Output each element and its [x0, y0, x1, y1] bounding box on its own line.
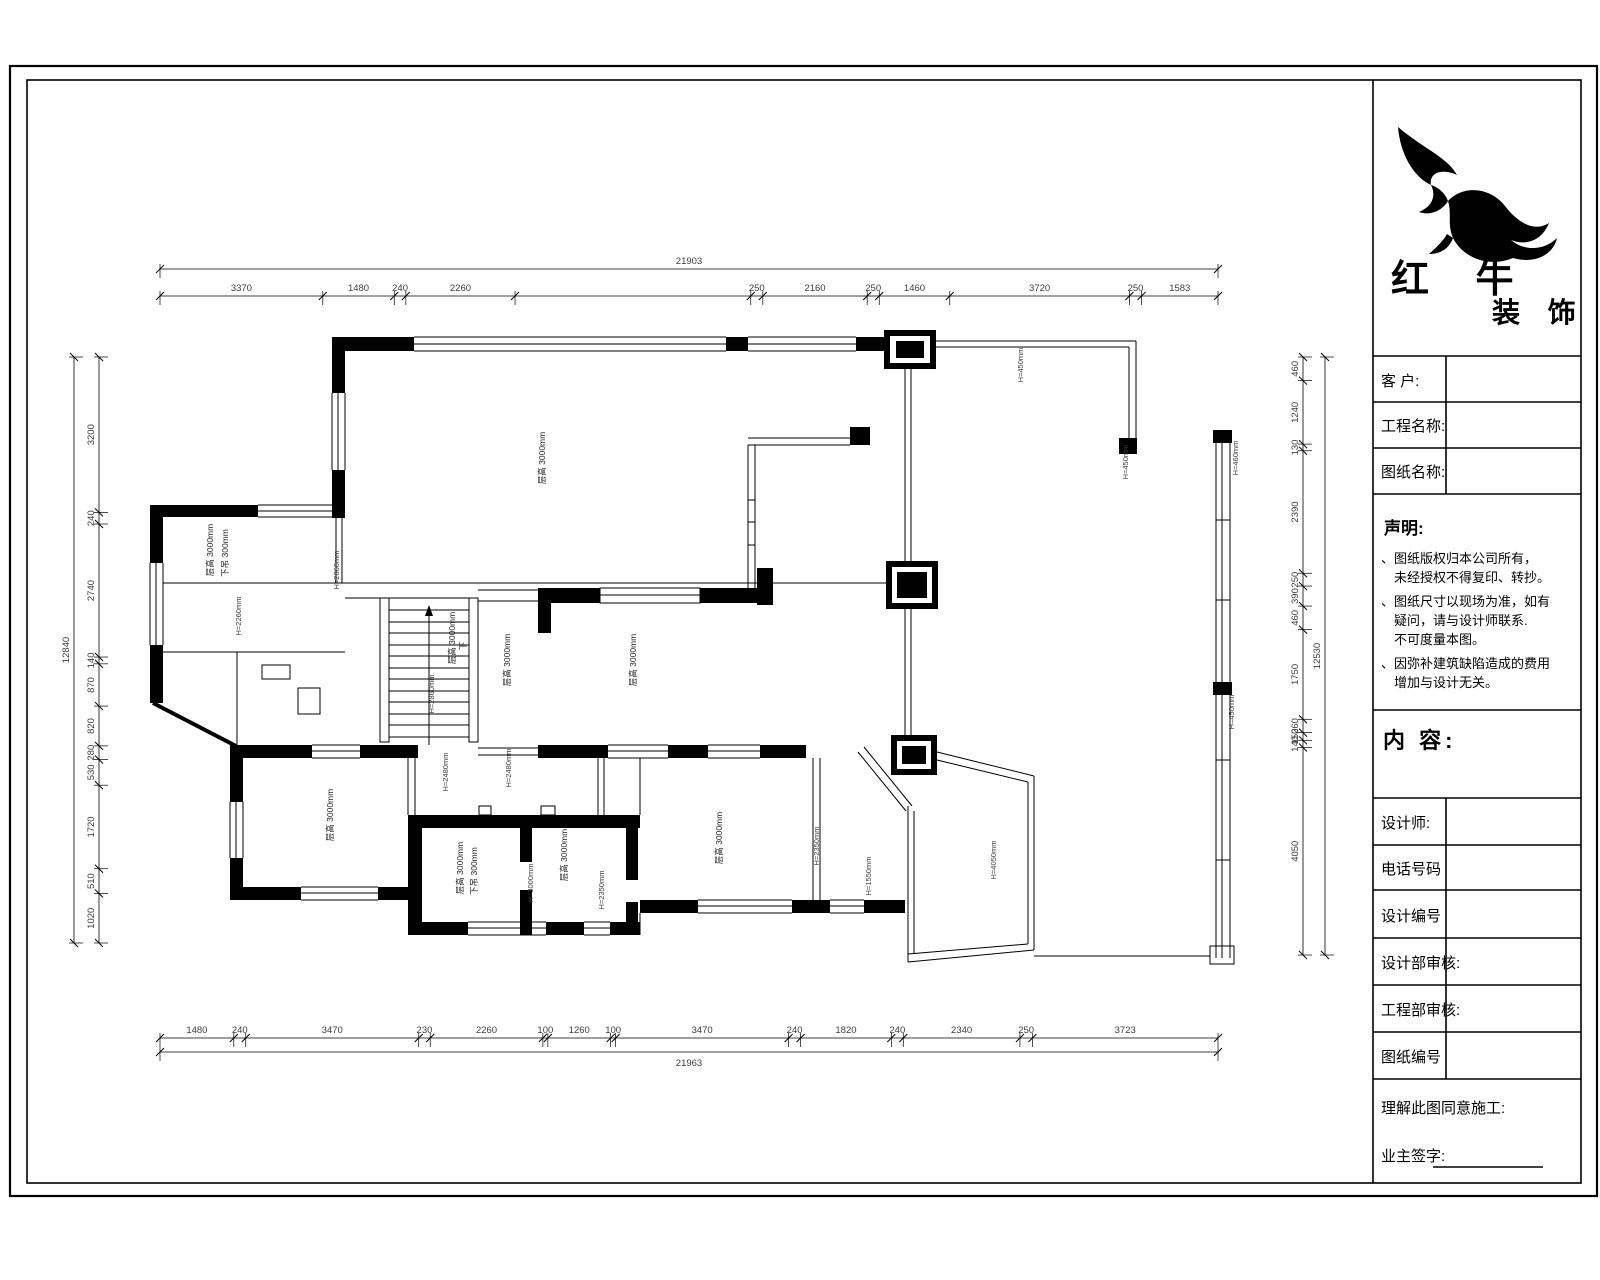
- dimension-label: 1240: [1290, 402, 1301, 423]
- dimension-label: 3470: [692, 1025, 713, 1036]
- height-annotation: H=1550mm: [864, 857, 873, 896]
- stair-down-label: 下: [458, 641, 468, 650]
- dimension-label: 240: [392, 283, 408, 294]
- room-label: 层高 3000mm: [205, 524, 215, 576]
- agree-label: 理解此图同意施工:: [1381, 1099, 1505, 1117]
- height-annotation: H=3000mm: [526, 864, 535, 903]
- height-annotation: H=460mm: [1231, 441, 1240, 476]
- dimension-label: 820: [86, 718, 97, 734]
- dim-right-segments: 4601240130239025039046017502601501404050: [1290, 353, 1312, 959]
- height-annotation: H=450mm: [1121, 445, 1130, 480]
- dimension-label: 460: [1290, 610, 1301, 626]
- entry-wall: [748, 427, 870, 588]
- dimension-label: 2340: [951, 1025, 972, 1036]
- floor-plan: [150, 330, 1234, 964]
- statement-title: 声明:: [1383, 518, 1424, 538]
- dimension-label: 280: [86, 745, 97, 761]
- statement-line: 、图纸版权归本公司所有，: [1381, 551, 1537, 566]
- dim-top-total: 21903: [156, 256, 1222, 278]
- dimension-label: 1480: [348, 283, 369, 294]
- dimension-label: 530: [86, 764, 97, 780]
- height-annotation: H=2480mm: [441, 753, 450, 792]
- height-annotation: H=450mm: [1227, 695, 1236, 730]
- owner-sign-label: 业主签字:: [1381, 1148, 1445, 1165]
- dimension-label: 240: [889, 1025, 905, 1036]
- dimension-label: 3200: [86, 424, 97, 445]
- dimension-label: 140: [86, 653, 97, 669]
- company-suffix: 装 饰: [1492, 297, 1586, 328]
- left-room-walls: [150, 351, 345, 746]
- content-label: 内 容:: [1383, 728, 1456, 753]
- dimension-label: 2260: [476, 1025, 497, 1036]
- project-name-label: 工程名称:: [1381, 418, 1445, 435]
- fixture: [262, 665, 290, 679]
- statement-line: 不可度量本图。: [1381, 632, 1485, 647]
- room-label: 下吊 300mm: [469, 847, 479, 895]
- company-name: 红 牛: [1391, 259, 1532, 301]
- fixture: [298, 688, 320, 714]
- room-label: 层高 3000mm: [714, 812, 724, 864]
- top-right-wall: [936, 341, 1137, 454]
- design-no-label: 设计编号: [1381, 908, 1441, 925]
- height-annotations: H=450mm H=450mm H=460mm H=450mm H=2860mm…: [234, 348, 1240, 910]
- dimension-label: 21963: [676, 1058, 702, 1069]
- dimension-label: 230: [417, 1025, 433, 1036]
- dim-left-segments: 3200240274014087082028053017205101020: [86, 353, 108, 947]
- dimension-label: 1820: [835, 1025, 856, 1036]
- inner-border: [27, 80, 1581, 1183]
- dimension-label: 510: [86, 873, 97, 889]
- dimension-label: 240: [86, 510, 97, 526]
- dimension-label: 250: [1018, 1025, 1034, 1036]
- dimension-label: 12840: [61, 637, 72, 663]
- dimension-label: 2160: [804, 283, 825, 294]
- statement-line: 、图纸尺寸以现场为准，如有: [1381, 594, 1550, 609]
- sheet-name-label: 图纸名称:: [1381, 464, 1445, 481]
- dimension-label: 390: [1290, 588, 1301, 604]
- drawing-frame: [10, 66, 1597, 1196]
- cad-sheet: 红 牛 装 饰 客 户: 工程名称: 图纸名称: 声明: 、图纸版权归本公司所有…: [0, 0, 1600, 1280]
- room-label: 层高 3000mm: [447, 612, 457, 664]
- middle-wall: [163, 568, 905, 633]
- dimension-label: 250: [749, 283, 765, 294]
- height-annotation: H=2350mm: [597, 871, 606, 910]
- height-annotation: H=2860mm: [427, 675, 436, 714]
- sheet-no-label: 图纸编号: [1381, 1049, 1441, 1066]
- dimension-label: 3720: [1029, 283, 1050, 294]
- dimension-label: 1020: [86, 908, 97, 929]
- height-annotation: H=4050mm: [989, 841, 998, 880]
- dimension-label: 2740: [86, 580, 97, 601]
- dim-bottom-segments: 1480240347023022601001260100347024018202…: [156, 1025, 1222, 1047]
- room-label: 层高 3000mm: [537, 432, 547, 484]
- dimension-label: 240: [232, 1025, 248, 1036]
- room-label: 层高 3000mm: [502, 634, 512, 686]
- dimension-label: 3723: [1115, 1025, 1136, 1036]
- room-label: 下吊 300mm: [220, 529, 230, 577]
- eng-review-label: 工程部审核:: [1381, 1002, 1460, 1019]
- dim-bottom-total: 21963: [156, 1047, 1222, 1069]
- phone-label: 电话号码: [1381, 861, 1441, 878]
- statement-line: 疑问，请与设计师联系.: [1381, 613, 1528, 628]
- client-label: 客 户:: [1381, 373, 1419, 390]
- dimension-label: 250: [1290, 572, 1301, 588]
- dimension-label: 100: [605, 1025, 621, 1036]
- dimension-label: 140: [1290, 736, 1301, 752]
- right-wall: [886, 369, 938, 775]
- height-annotation: H=2860mm: [332, 551, 341, 590]
- height-annotation: H=2350mm: [812, 827, 821, 866]
- bottom-right-room: [478, 745, 905, 913]
- dimension-label: 250: [865, 283, 881, 294]
- dimension-label: 250: [1128, 283, 1144, 294]
- title-block: 红 牛 装 饰 客 户: 工程名称: 图纸名称: 声明: 、图纸版权归本公司所有…: [1373, 80, 1586, 1183]
- dimension-label: 100: [537, 1025, 553, 1036]
- dim-right-total: 12530: [1312, 353, 1334, 959]
- room-label: 层高 3000mm: [455, 842, 465, 894]
- dimension-label: 3470: [322, 1025, 343, 1036]
- outer-border: [10, 66, 1597, 1196]
- top-wall: [332, 330, 936, 369]
- dimension-label: 1460: [904, 283, 925, 294]
- designer-label: 设计师:: [1381, 815, 1430, 832]
- dimension-label: 460: [1290, 361, 1301, 377]
- dim-left-total: 12840: [61, 353, 83, 947]
- dimension-label: 1260: [569, 1025, 590, 1036]
- dimension-label: 1750: [1290, 664, 1301, 685]
- height-annotation: H=450mm: [1016, 348, 1025, 383]
- room-label: 层高 3000mm: [325, 789, 335, 841]
- dimension-label: 4050: [1290, 841, 1301, 862]
- bay-room: [858, 747, 1034, 962]
- statement-line: 未经授权不得复印、转抄。: [1381, 570, 1550, 585]
- design-review-label: 设计部审核:: [1381, 955, 1460, 972]
- dim-top-segments: 3370148024022602502160250146037202501583: [156, 283, 1222, 305]
- dimension-label: 21903: [676, 256, 702, 267]
- dimension-label: 12530: [1312, 643, 1323, 669]
- stairs: [345, 598, 478, 745]
- dimension-label: 3370: [231, 283, 252, 294]
- floorplan-drawing: 红 牛 装 饰 客 户: 工程名称: 图纸名称: 声明: 、图纸版权归本公司所有…: [0, 0, 1600, 1280]
- room-label: 层高 3000mm: [559, 829, 569, 881]
- height-annotation: H=2260mm: [234, 597, 243, 636]
- company-logo: [1398, 127, 1557, 262]
- dimension-label: 240: [787, 1025, 803, 1036]
- dimension-label: 1480: [186, 1025, 207, 1036]
- dimension-label: 870: [86, 677, 97, 693]
- dimension-label: 130: [1290, 440, 1301, 456]
- balcony-railing: [1034, 430, 1234, 964]
- dimension-label: 1583: [1169, 283, 1190, 294]
- statement-line: 增加与设计无关。: [1381, 675, 1498, 690]
- dimension-label: 2260: [450, 283, 471, 294]
- dimension-label: 1720: [86, 816, 97, 837]
- room-label: 层高 3000mm: [628, 634, 638, 686]
- dimension-label: 2390: [1290, 501, 1301, 522]
- statement-line: 、因弥补建筑缺陷造成的费用: [1381, 656, 1550, 671]
- height-annotation: H=2480mm: [504, 749, 513, 788]
